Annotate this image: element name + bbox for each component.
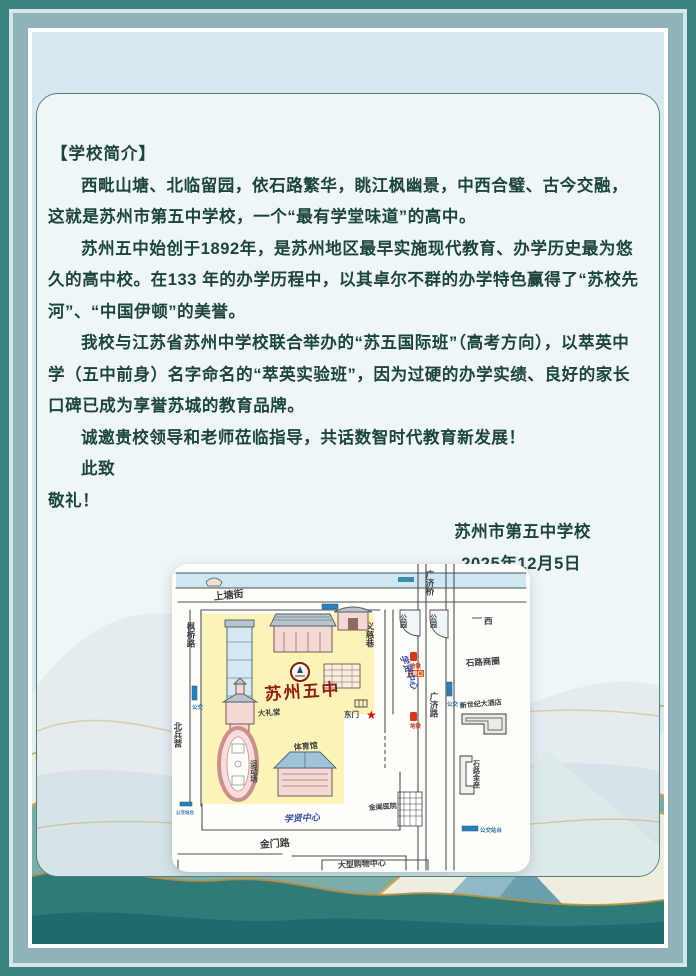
bus-stop-bl [180, 802, 192, 806]
river [176, 573, 526, 588]
salute: 敬礼！ [48, 486, 643, 518]
mall-block: 大型购物中心 [322, 857, 428, 870]
section-title: 【学校简介】 [51, 139, 643, 171]
paragraph-4: 诚邀贵校领导和老师莅临指导，共话数智时代教育新发展！ [48, 423, 643, 455]
mall-label: 大型购物中心 [338, 857, 386, 869]
shangtang-street-label: 上塘街 [213, 587, 244, 603]
bus-stop-top [322, 604, 338, 609]
xuexian-center-label: 学贤中心 [284, 812, 321, 824]
campus-map-panel: 上塘街 枫桥路 公交 北兵营 义慈巷 [172, 564, 530, 872]
bus-label-left: 公交 [192, 703, 204, 711]
hospital-building: 金阊医院 [368, 792, 422, 826]
gate-star-icon: ★ [366, 708, 377, 722]
hospital-label: 金阊医院 [368, 801, 398, 812]
courtyard-building [270, 614, 336, 652]
page-content: 【学校简介】 西毗山塘、北临留园，依石路繁华，眺江枫幽景，中西合璧、古今交融，这… [32, 32, 664, 944]
letter-body: 【学校简介】 西毗山塘、北临留园，依石路繁华，眺江枫幽景，中西合璧、古今交融，这… [37, 94, 659, 580]
track-label: 运动场 [249, 760, 258, 784]
parks: 公园 公园 西 [400, 610, 494, 638]
jinzuo-label: 石路金座 [472, 760, 481, 789]
gate-building [334, 607, 372, 630]
closing: 此致 [48, 454, 643, 486]
jinmen-road-label: 金门路 [258, 836, 291, 851]
east-gate-label: 东门 [344, 709, 359, 719]
signature: 苏州市第五中学校 [48, 517, 643, 549]
campus-map: 上塘街 枫桥路 公交 北兵营 义慈巷 [172, 564, 530, 872]
park1-label: 公园 [400, 614, 408, 629]
paragraph-2: 苏州五中始创于1892年，是苏州地区最早实施现代教育、办学历史最为悠久的高中校。… [48, 234, 643, 329]
metro-icon-2 [410, 712, 417, 721]
bus-label-right: 公交 [447, 700, 459, 708]
bus-stop-br [462, 826, 478, 831]
west-label: 西 [484, 616, 493, 626]
fengqiao-road: 枫桥路 公交 北兵营 [173, 610, 204, 806]
letter-card: 【学校简介】 西毗山塘、北临留园，依石路繁华，眺江枫幽景，中西合璧、古今交融，这… [36, 93, 660, 877]
shilu-area: 石路商圈 新世纪大酒店 石路金座 公交站台 [459, 656, 506, 834]
bus-station-label-right: 公交站台 [480, 826, 503, 834]
gym-label: 体育馆 [293, 740, 318, 752]
shilu-district-label: 石路商圈 [464, 656, 500, 668]
boat-dock [398, 577, 414, 582]
paragraph-3: 我校与江苏省苏州中学校联合举办的“苏五国际班”（高考方向），以萃英中学（五中前身… [48, 328, 643, 423]
bus-stop-left [192, 686, 197, 700]
school-seal [291, 663, 309, 681]
guangji-bridge-label: 广济桥 [425, 569, 435, 596]
hotel-label: 新世纪大酒店 [459, 697, 502, 710]
auditorium-label: 大礼堂 [257, 706, 281, 718]
bus-station-label-left: 公交站台 [176, 809, 194, 816]
running-track: 运动场 [219, 728, 259, 800]
beibingying-label: 北兵营 [173, 721, 183, 748]
shangtang-street: 上塘街 [178, 587, 526, 610]
guangji-road-label: 广济路 [429, 691, 439, 718]
metro-icon-1 [410, 652, 417, 661]
paragraph-1: 西毗山塘、北临留园，依石路繁华，眺江枫幽景，中西合璧、古今交融，这就是苏州市第五… [48, 171, 643, 234]
hotel-building [462, 714, 506, 734]
bus-stop-right [447, 682, 452, 696]
metro-label-2: 地铁 [410, 722, 422, 730]
fengqiao-road-label: 枫桥路 [186, 621, 196, 648]
park2-label: 公园 [430, 614, 438, 629]
